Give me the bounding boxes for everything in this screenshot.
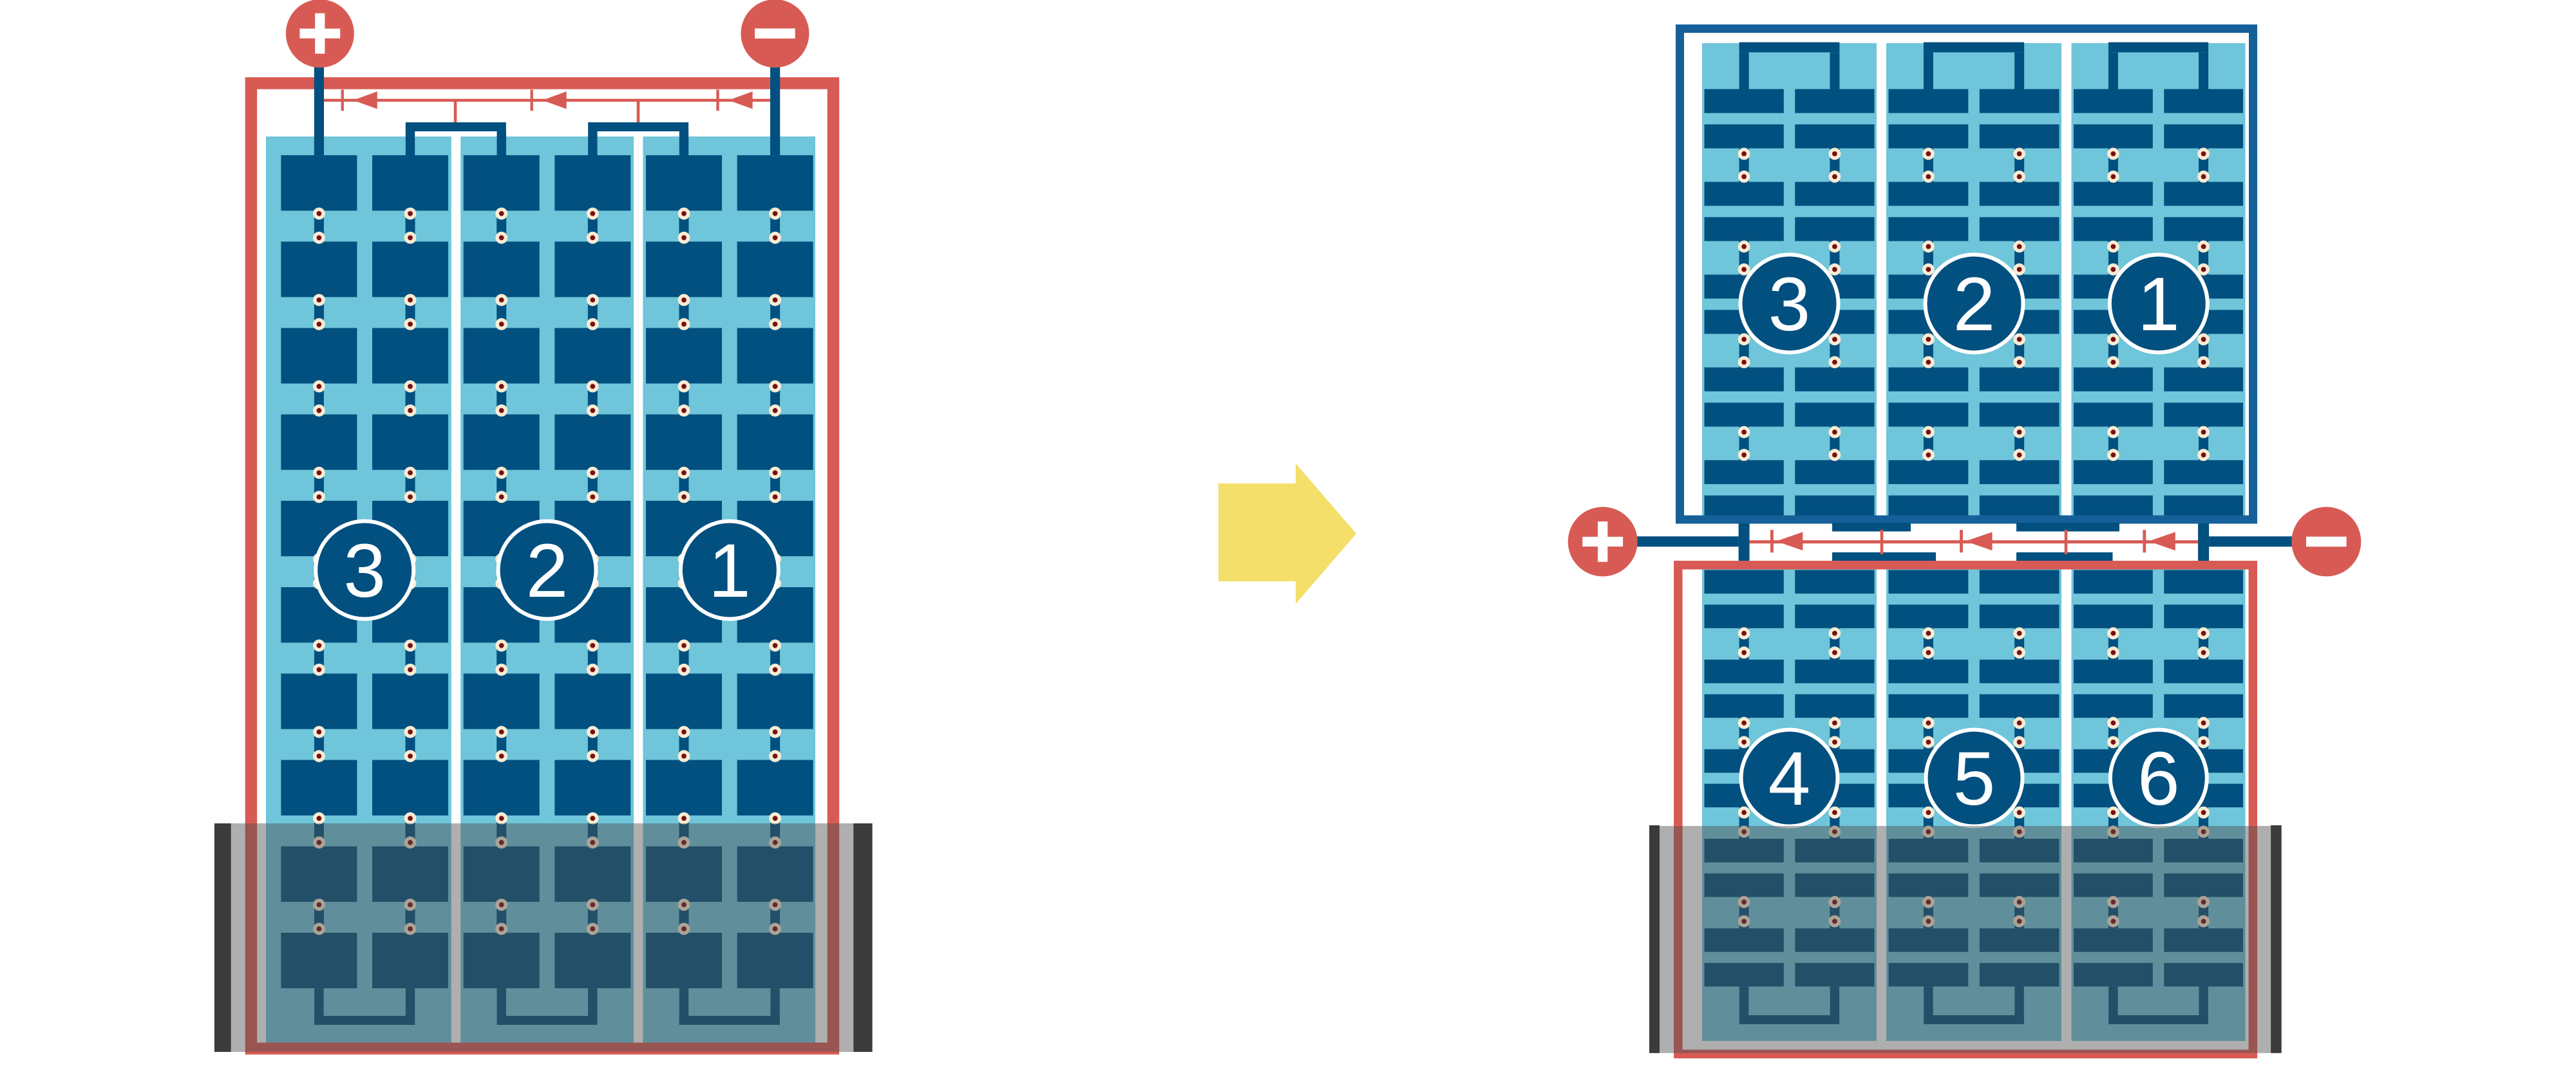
- svg-text:2: 2: [526, 529, 569, 614]
- svg-text:1: 1: [2137, 262, 2180, 347]
- svg-text:3: 3: [1768, 262, 1811, 347]
- svg-text:4: 4: [1768, 736, 1811, 821]
- svg-text:3: 3: [343, 529, 386, 614]
- svg-text:1: 1: [708, 529, 751, 614]
- svg-text:6: 6: [2137, 736, 2180, 821]
- svg-text:5: 5: [1953, 736, 1996, 821]
- svg-text:2: 2: [1953, 262, 1996, 347]
